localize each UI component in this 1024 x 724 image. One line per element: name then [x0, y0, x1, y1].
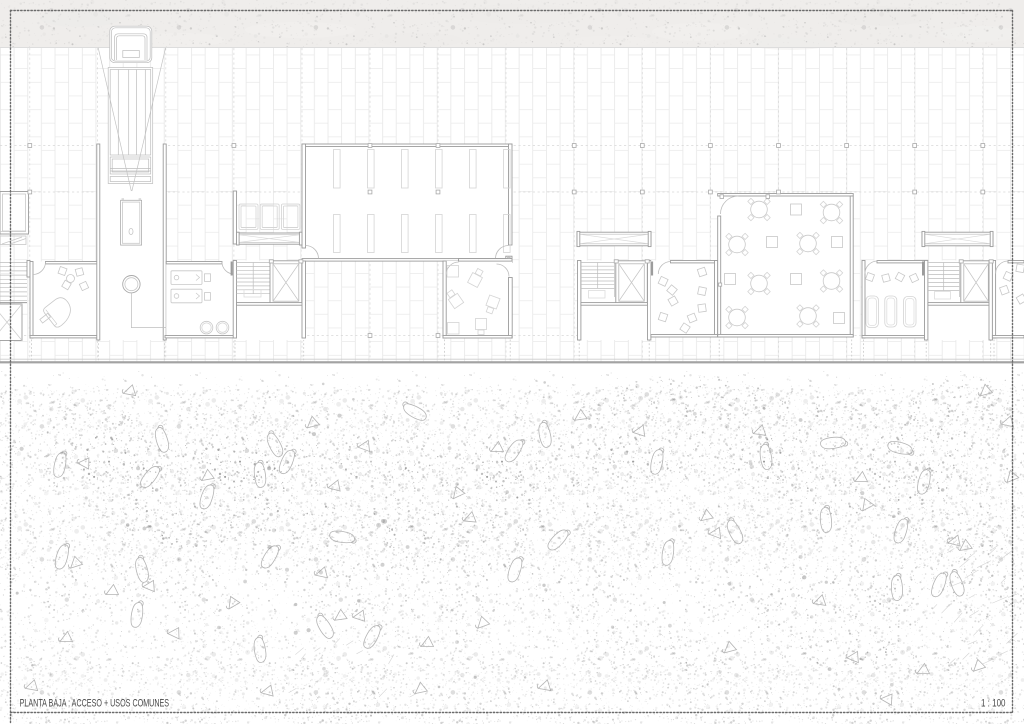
svg-text:1 : 100: 1 : 100 — [981, 698, 1006, 710]
svg-text:PLANTA BAJA : ACCESO + USOS CO: PLANTA BAJA : ACCESO + USOS COMUNES — [20, 698, 170, 710]
